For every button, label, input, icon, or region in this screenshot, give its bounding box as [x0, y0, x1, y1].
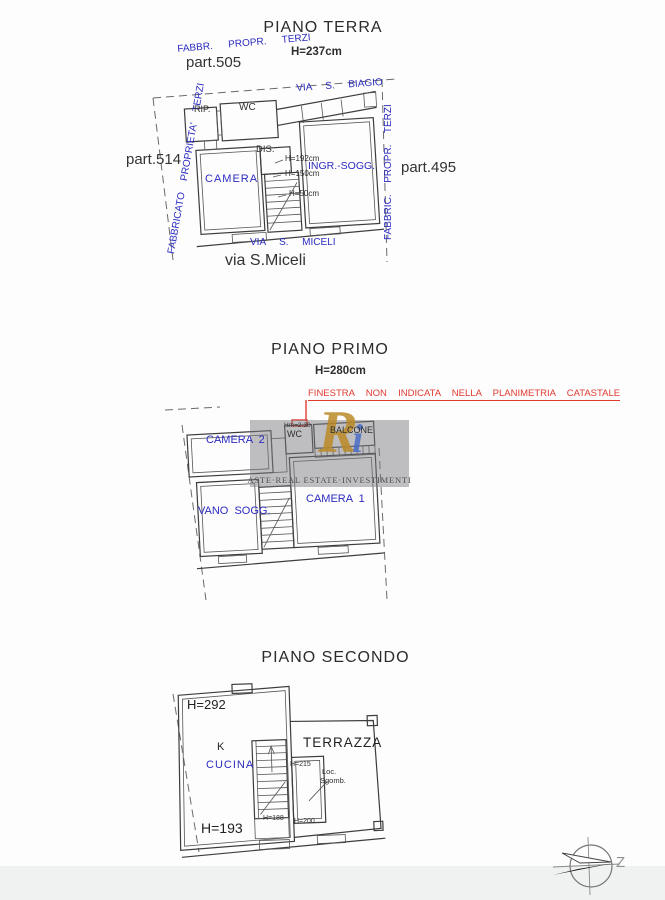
primo-title: PIANO PRIMO [250, 342, 410, 359]
secondo-title: PIANO SECONDO [248, 650, 423, 667]
height-label-192: H=192cm [285, 155, 319, 163]
height-label-188: H=188 [263, 815, 284, 822]
terra-street-miceli-big-label: via S.Miceli [225, 253, 306, 270]
floorplan-document: PIANO TERRA H=237cm FABBR [0, 0, 665, 900]
room-label-camera2: CAMERA 2 [206, 435, 265, 447]
room-label-rip: RIP. [194, 105, 210, 114]
room-label-cucina: CUCINA [206, 760, 254, 772]
north-arrow-icon [548, 833, 643, 897]
watermark-caption: ASTE·REAL ESTATE·INVESTIMENTI [247, 475, 411, 485]
room-label-vano-sogg: VANO SOGG. [198, 506, 271, 518]
terra-parcel-514-label: part.514 [126, 152, 181, 168]
height-label-215: H=215 [290, 761, 311, 768]
terra-boundary-right-label: FABBRIC. PROPR. TERZI [384, 104, 395, 240]
terra-parcel-505-label: part.505 [186, 55, 241, 71]
primo-ceiling-height: H=280cm [315, 365, 366, 377]
terra-street-miceli-label: VIA S. MICELI [250, 238, 335, 249]
compass-direction-label: Z [616, 855, 625, 871]
terra-ceiling-height: H=237cm [291, 46, 342, 58]
room-label-wc-terra: WC [239, 103, 256, 114]
terra-title: PIANO TERRA [238, 20, 408, 37]
terra-parcel-495-label: part.495 [401, 160, 456, 176]
height-label-292: H=292 [187, 698, 226, 712]
room-label-loc: Loc. [322, 768, 336, 776]
room-label-dis: DIS. [256, 145, 274, 155]
height-label-50: H=50cm [289, 190, 319, 198]
room-label-camera1: CAMERA 1 [306, 494, 365, 506]
room-label-camera: CAMERA [205, 174, 258, 186]
room-label-balcone: BALCONE [330, 426, 373, 435]
room-label-terrazza: TERRAZZA [303, 736, 382, 750]
height-label-150: H=150cm [285, 170, 319, 178]
height-label-193: H=193 [201, 821, 243, 836]
height-label-200: H=200 [294, 818, 315, 825]
room-label-wc-primo: WC [287, 430, 302, 439]
watermark-logo-i: i [352, 416, 363, 461]
room-label-sgomb: Sgomb. [320, 777, 346, 785]
room-label-k: K [217, 742, 224, 754]
